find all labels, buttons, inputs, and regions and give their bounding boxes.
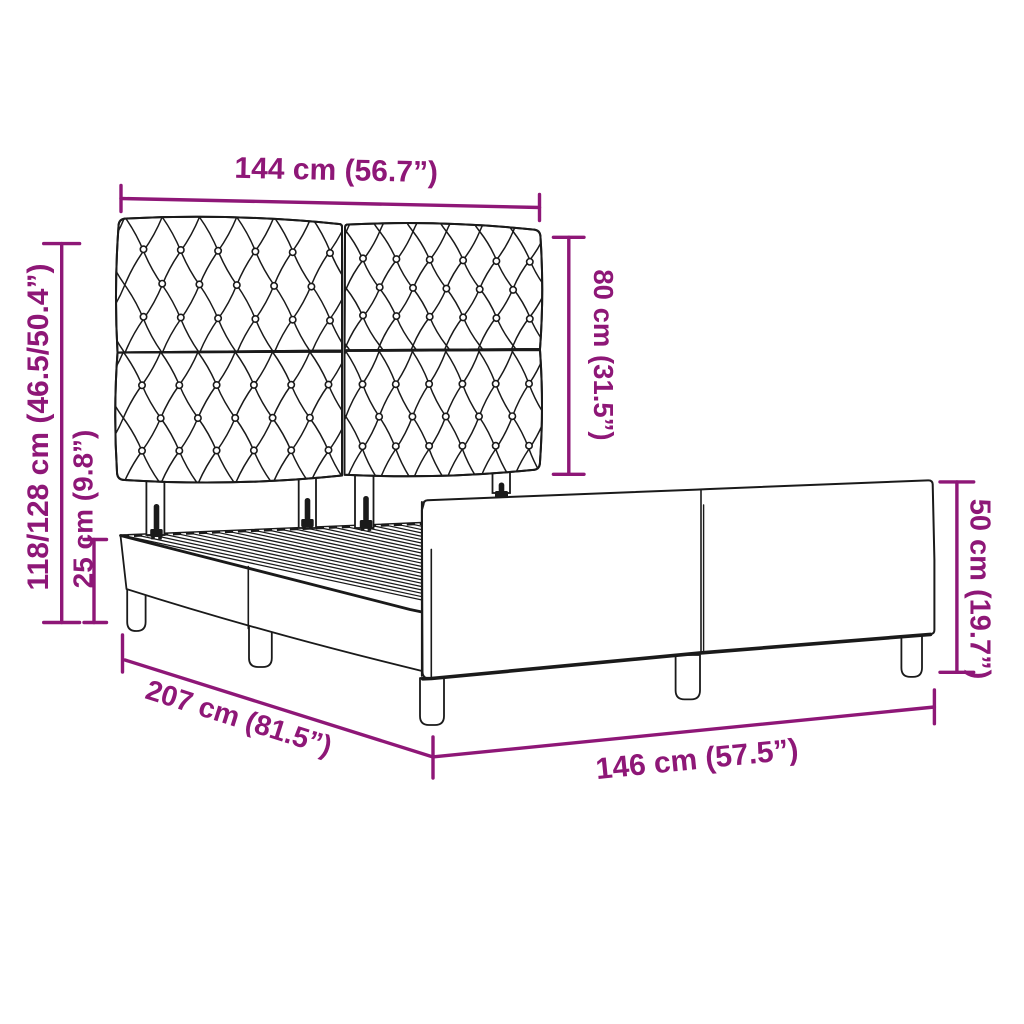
svg-text:144 cm (56.7”): 144 cm (56.7”) bbox=[234, 152, 438, 189]
svg-text:50 cm (19.7”): 50 cm (19.7”) bbox=[964, 499, 996, 680]
svg-text:80 cm (31.5”): 80 cm (31.5”) bbox=[588, 269, 619, 440]
svg-text:118/128 cm (46.5/50.4”): 118/128 cm (46.5/50.4”) bbox=[22, 264, 55, 591]
svg-text:25 cm (9.8”): 25 cm (9.8”) bbox=[68, 430, 99, 589]
